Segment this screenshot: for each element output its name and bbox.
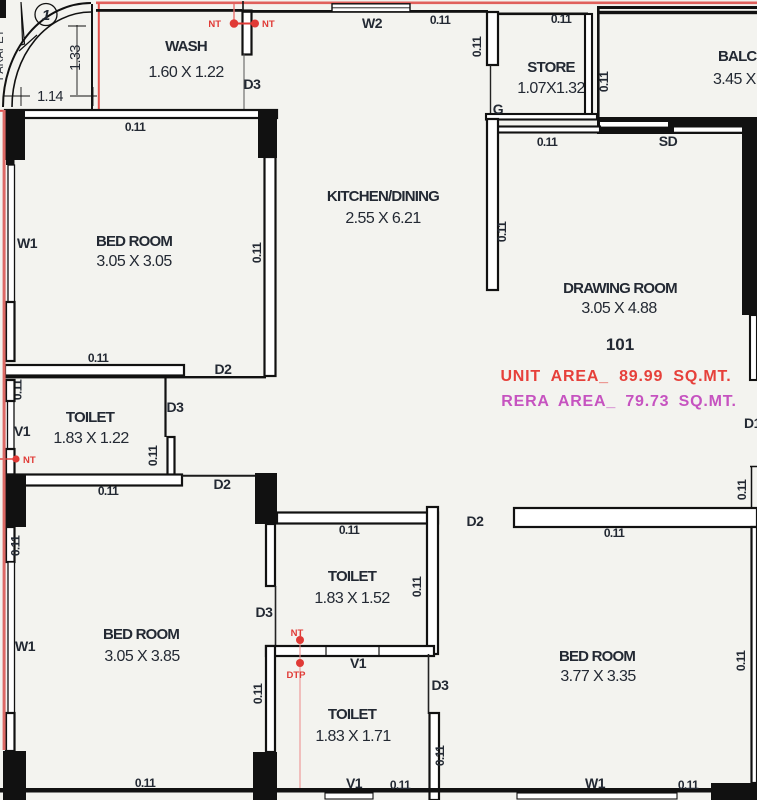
svg-text:KITCHEN/DINING: KITCHEN/DINING: [327, 188, 439, 205]
svg-text:NT: NT: [23, 455, 36, 466]
svg-text:0.11: 0.11: [339, 523, 360, 537]
svg-text:V1: V1: [350, 655, 367, 671]
svg-text:3.05 X 3.85: 3.05 X 3.85: [104, 648, 180, 665]
svg-text:0.11: 0.11: [604, 526, 625, 540]
svg-text:D2: D2: [215, 361, 233, 377]
svg-text:G: G: [493, 101, 504, 117]
svg-text:0.11: 0.11: [735, 479, 749, 500]
svg-text:RERA AREA_ 79.73 SQ.MT.: RERA AREA_ 79.73 SQ.MT.: [501, 393, 737, 410]
svg-text:SD: SD: [659, 133, 678, 149]
svg-text:TOILET: TOILET: [66, 409, 115, 426]
svg-text:UNIT AREA_ 89.99 SQ.MT.: UNIT AREA_ 89.99 SQ.MT.: [500, 368, 731, 385]
svg-text:0.11: 0.11: [678, 778, 699, 792]
svg-text:0.11: 0.11: [433, 745, 447, 766]
svg-text:BED ROOM: BED ROOM: [559, 648, 635, 665]
svg-text:STORE: STORE: [527, 59, 575, 76]
svg-text:WASH: WASH: [165, 38, 207, 55]
svg-text:W1: W1: [585, 775, 606, 791]
svg-text:1: 1: [42, 7, 50, 24]
svg-text:0.11: 0.11: [135, 776, 156, 790]
svg-text:0.11: 0.11: [495, 221, 509, 242]
svg-text:V1: V1: [346, 775, 363, 791]
svg-text:0.11: 0.11: [734, 650, 748, 671]
svg-text:0.11: 0.11: [125, 120, 146, 134]
svg-text:BED ROOM: BED ROOM: [103, 626, 179, 643]
svg-text:0.11: 0.11: [390, 778, 411, 792]
svg-text:DRAWING ROOM: DRAWING ROOM: [563, 280, 677, 297]
svg-text:1.14: 1.14: [37, 89, 63, 105]
svg-text:1.60 X 1.22: 1.60 X 1.22: [148, 64, 224, 81]
svg-text:1.83 X 1.22: 1.83 X 1.22: [53, 430, 129, 447]
svg-text:0.11: 0.11: [537, 135, 558, 149]
svg-text:PARAPET: PARAPET: [0, 29, 6, 80]
svg-text:D2: D2: [214, 476, 232, 492]
svg-text:3.77 X 3.35: 3.77 X 3.35: [560, 668, 636, 685]
svg-text:BALCONY: BALCONY: [718, 48, 757, 65]
svg-text:W1: W1: [15, 638, 36, 654]
svg-text:1.83 X 1.71: 1.83 X 1.71: [315, 728, 391, 745]
svg-text:1.07X1.32: 1.07X1.32: [517, 80, 585, 97]
svg-text:0.11: 0.11: [250, 242, 264, 263]
svg-text:V1: V1: [14, 423, 31, 439]
svg-text:D3: D3: [432, 677, 450, 693]
svg-text:W2: W2: [362, 15, 383, 31]
svg-text:D3: D3: [167, 399, 185, 415]
svg-text:TOILET: TOILET: [328, 568, 377, 585]
svg-text:D3: D3: [244, 76, 262, 92]
svg-text:TOILET: TOILET: [328, 706, 377, 723]
svg-text:0.11: 0.11: [551, 12, 572, 26]
svg-text:101: 101: [606, 335, 634, 354]
svg-text:0.11: 0.11: [98, 484, 119, 498]
svg-text:D1: D1: [744, 415, 757, 431]
svg-text:2.55 X 6.21: 2.55 X 6.21: [345, 210, 421, 227]
svg-text:0.11: 0.11: [251, 683, 265, 704]
svg-text:3.45 X 1.0: 3.45 X 1.0: [713, 71, 757, 88]
svg-text:0.11: 0.11: [88, 351, 109, 365]
svg-text:3.05 X 4.88: 3.05 X 4.88: [581, 300, 657, 317]
svg-text:NT: NT: [291, 628, 304, 639]
svg-text:0.11: 0.11: [597, 71, 611, 92]
svg-text:0.11: 0.11: [146, 445, 160, 466]
svg-text:NT: NT: [262, 19, 275, 30]
svg-text:D3: D3: [256, 604, 274, 620]
svg-text:1.33: 1.33: [68, 45, 84, 71]
svg-text:DTP: DTP: [287, 670, 307, 681]
svg-text:0.11: 0.11: [9, 535, 23, 556]
svg-text:W1: W1: [17, 235, 38, 251]
svg-text:0.11: 0.11: [410, 576, 424, 597]
svg-text:NT: NT: [208, 19, 221, 30]
svg-text:0.11: 0.11: [470, 36, 484, 57]
svg-text:0.11: 0.11: [430, 13, 451, 27]
svg-text:D2: D2: [467, 513, 485, 529]
svg-text:3.05 X 3.05: 3.05 X 3.05: [96, 253, 172, 270]
svg-text:1.83 X 1.52: 1.83 X 1.52: [314, 590, 390, 607]
svg-text:BED ROOM: BED ROOM: [96, 233, 172, 250]
